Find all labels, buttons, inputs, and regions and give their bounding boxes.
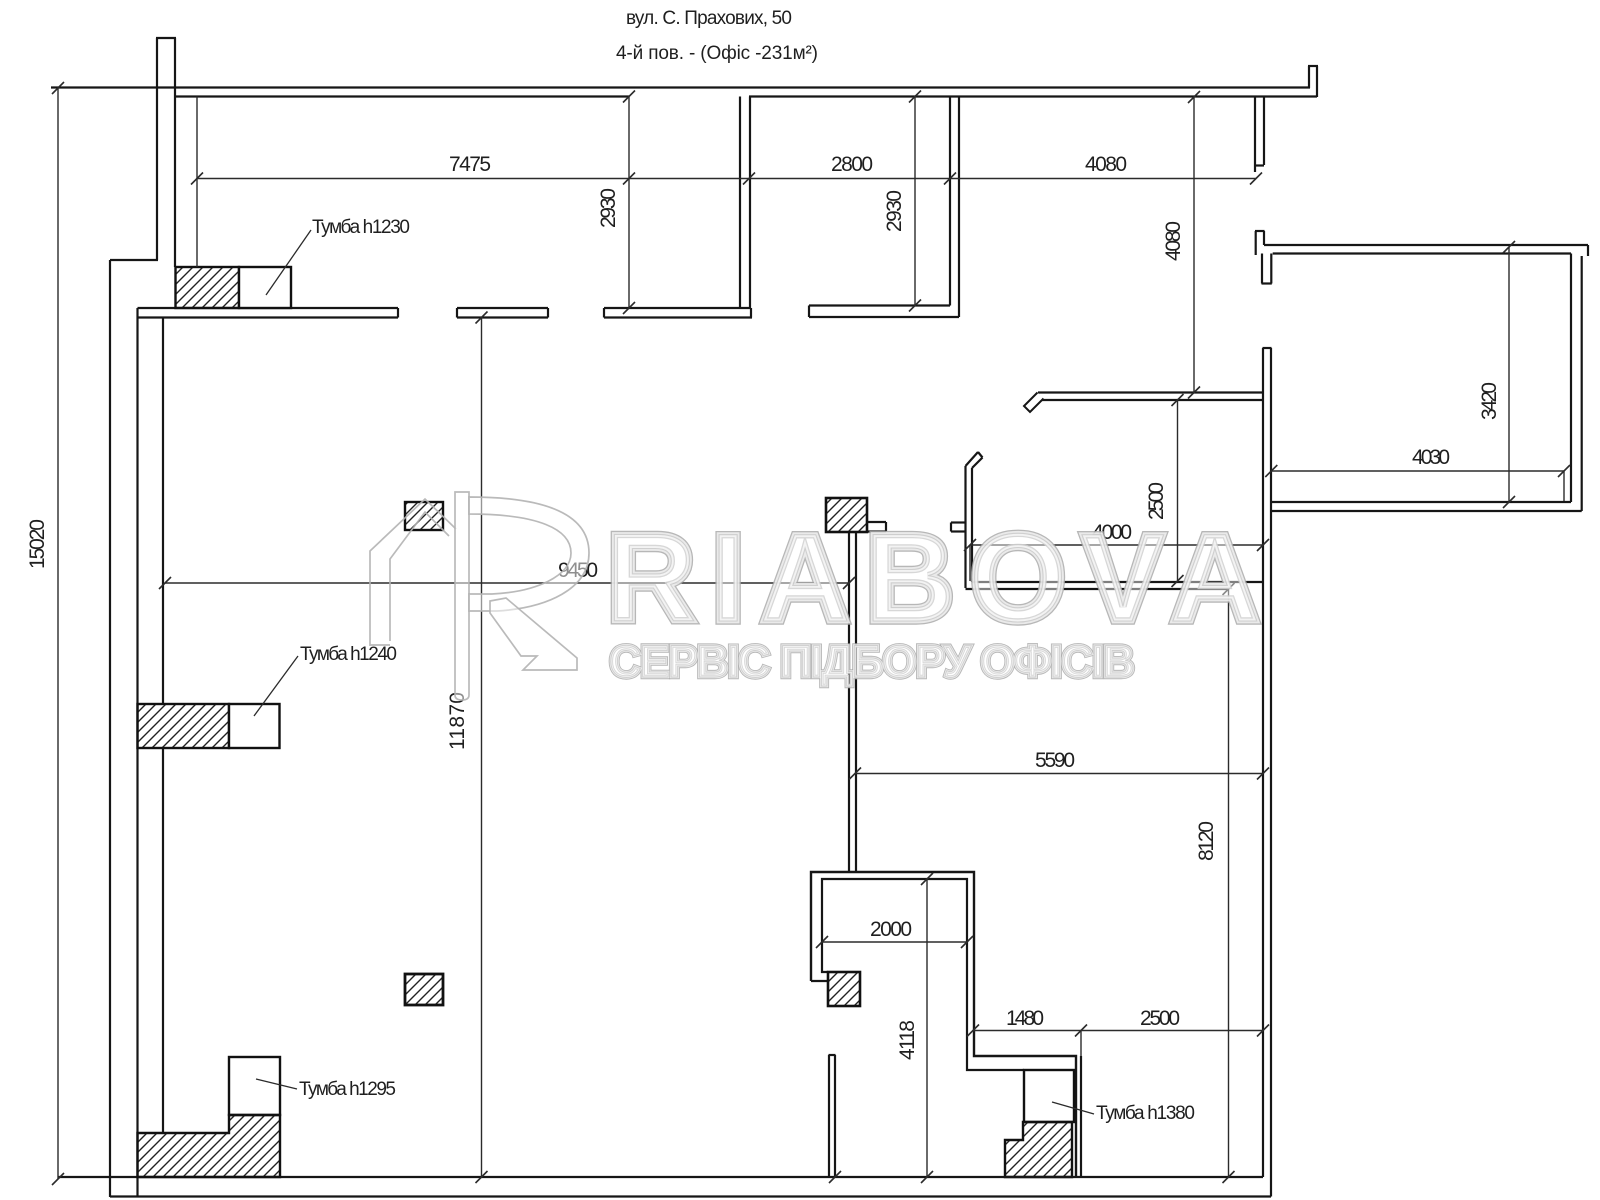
svg-text:4030: 4030 bbox=[1412, 446, 1450, 469]
svg-text:5590: 5590 bbox=[1035, 749, 1075, 772]
svg-text:4080: 4080 bbox=[1085, 153, 1127, 176]
svg-text:4-й пов. - (Офіс -231м²): 4-й пов. - (Офіс -231м²) bbox=[616, 43, 818, 64]
svg-text:2930: 2930 bbox=[597, 188, 620, 228]
svg-text:Тумба h1380: Тумба h1380 bbox=[1096, 1103, 1195, 1124]
svg-text:вул. С. Прахових, 50: вул. С. Прахових, 50 bbox=[626, 8, 792, 29]
svg-text:СЕРВІС ПІДБОРУ ОФІСІВ: СЕРВІС ПІДБОРУ ОФІСІВ bbox=[609, 636, 1135, 687]
svg-text:Тумба h1230: Тумба h1230 bbox=[312, 217, 410, 238]
svg-text:4118: 4118 bbox=[896, 1020, 919, 1060]
svg-text:2930: 2930 bbox=[883, 190, 906, 232]
svg-text:7475: 7475 bbox=[449, 153, 491, 176]
svg-text:8120: 8120 bbox=[1195, 821, 1218, 861]
svg-text:15020: 15020 bbox=[26, 519, 49, 569]
svg-text:2800: 2800 bbox=[831, 153, 873, 176]
svg-text:11870: 11870 bbox=[446, 692, 469, 750]
svg-text:3420: 3420 bbox=[1478, 382, 1501, 420]
svg-text:4080: 4080 bbox=[1162, 221, 1185, 261]
svg-text:Тумба h1295: Тумба h1295 bbox=[299, 1079, 396, 1100]
svg-text:1480: 1480 bbox=[1006, 1007, 1044, 1030]
svg-text:2500: 2500 bbox=[1140, 1007, 1180, 1030]
svg-text:Тумба h1240: Тумба h1240 bbox=[300, 644, 397, 665]
svg-text:2000: 2000 bbox=[870, 918, 912, 941]
